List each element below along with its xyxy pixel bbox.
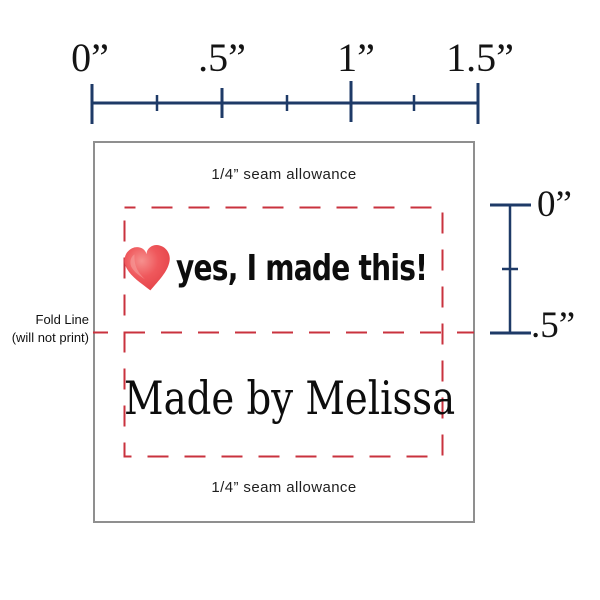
label-square-border xyxy=(94,142,474,522)
side-ruler xyxy=(490,205,531,333)
side-ruler-label-0: 0” xyxy=(537,186,572,223)
top-ruler-label-1: 1” xyxy=(337,38,375,78)
seam-allowance-caption-top: 1/4” seam allowance xyxy=(93,166,475,183)
top-ruler xyxy=(92,81,478,124)
heart-icon xyxy=(123,244,173,293)
seam-allowance-caption-bottom: 1/4” seam allowance xyxy=(93,479,475,496)
fold-line-note-line1: Fold Line xyxy=(0,311,89,329)
top-ruler-label-0: 0” xyxy=(71,38,109,78)
measurement-overlay xyxy=(0,0,600,600)
fold-line-note-line2: (will not print) xyxy=(0,329,89,347)
label-tagline-text: yes, I made this! xyxy=(176,247,427,290)
top-ruler-label-05: .5” xyxy=(198,38,246,78)
top-ruler-label-15: 1.5” xyxy=(446,38,514,78)
fold-line-note: Fold Line (will not print) xyxy=(0,311,89,346)
side-ruler-label-05: .5” xyxy=(531,307,575,344)
sew-label-mockup: 0” .5” 1” 1.5” 0” .5” 1/4” seam allowanc… xyxy=(0,0,600,600)
label-name-text: Made by Melissa xyxy=(124,374,455,422)
